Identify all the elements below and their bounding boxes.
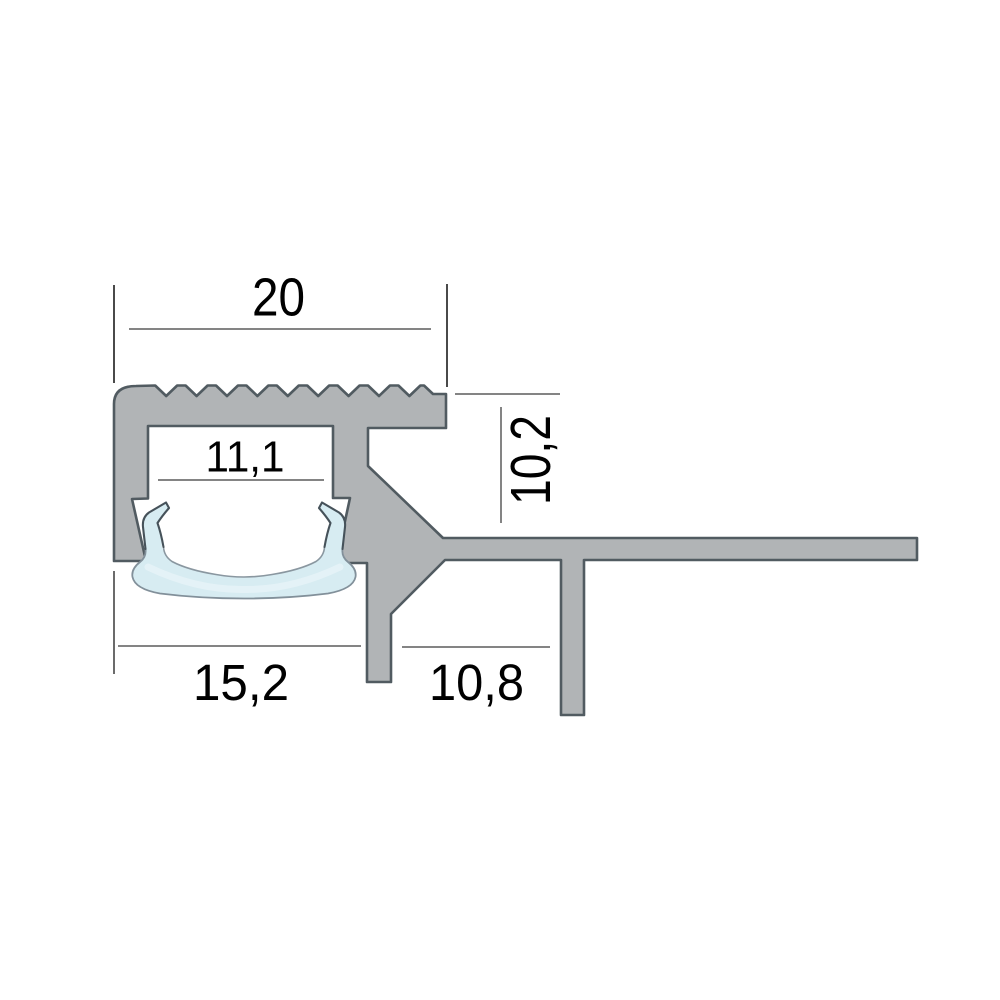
svg-text:15,2: 15,2 (193, 654, 289, 711)
svg-text:20: 20 (252, 268, 305, 328)
svg-text:10,2: 10,2 (499, 415, 563, 505)
svg-text:10,8: 10,8 (429, 654, 524, 711)
svg-text:11,1: 11,1 (206, 433, 285, 482)
